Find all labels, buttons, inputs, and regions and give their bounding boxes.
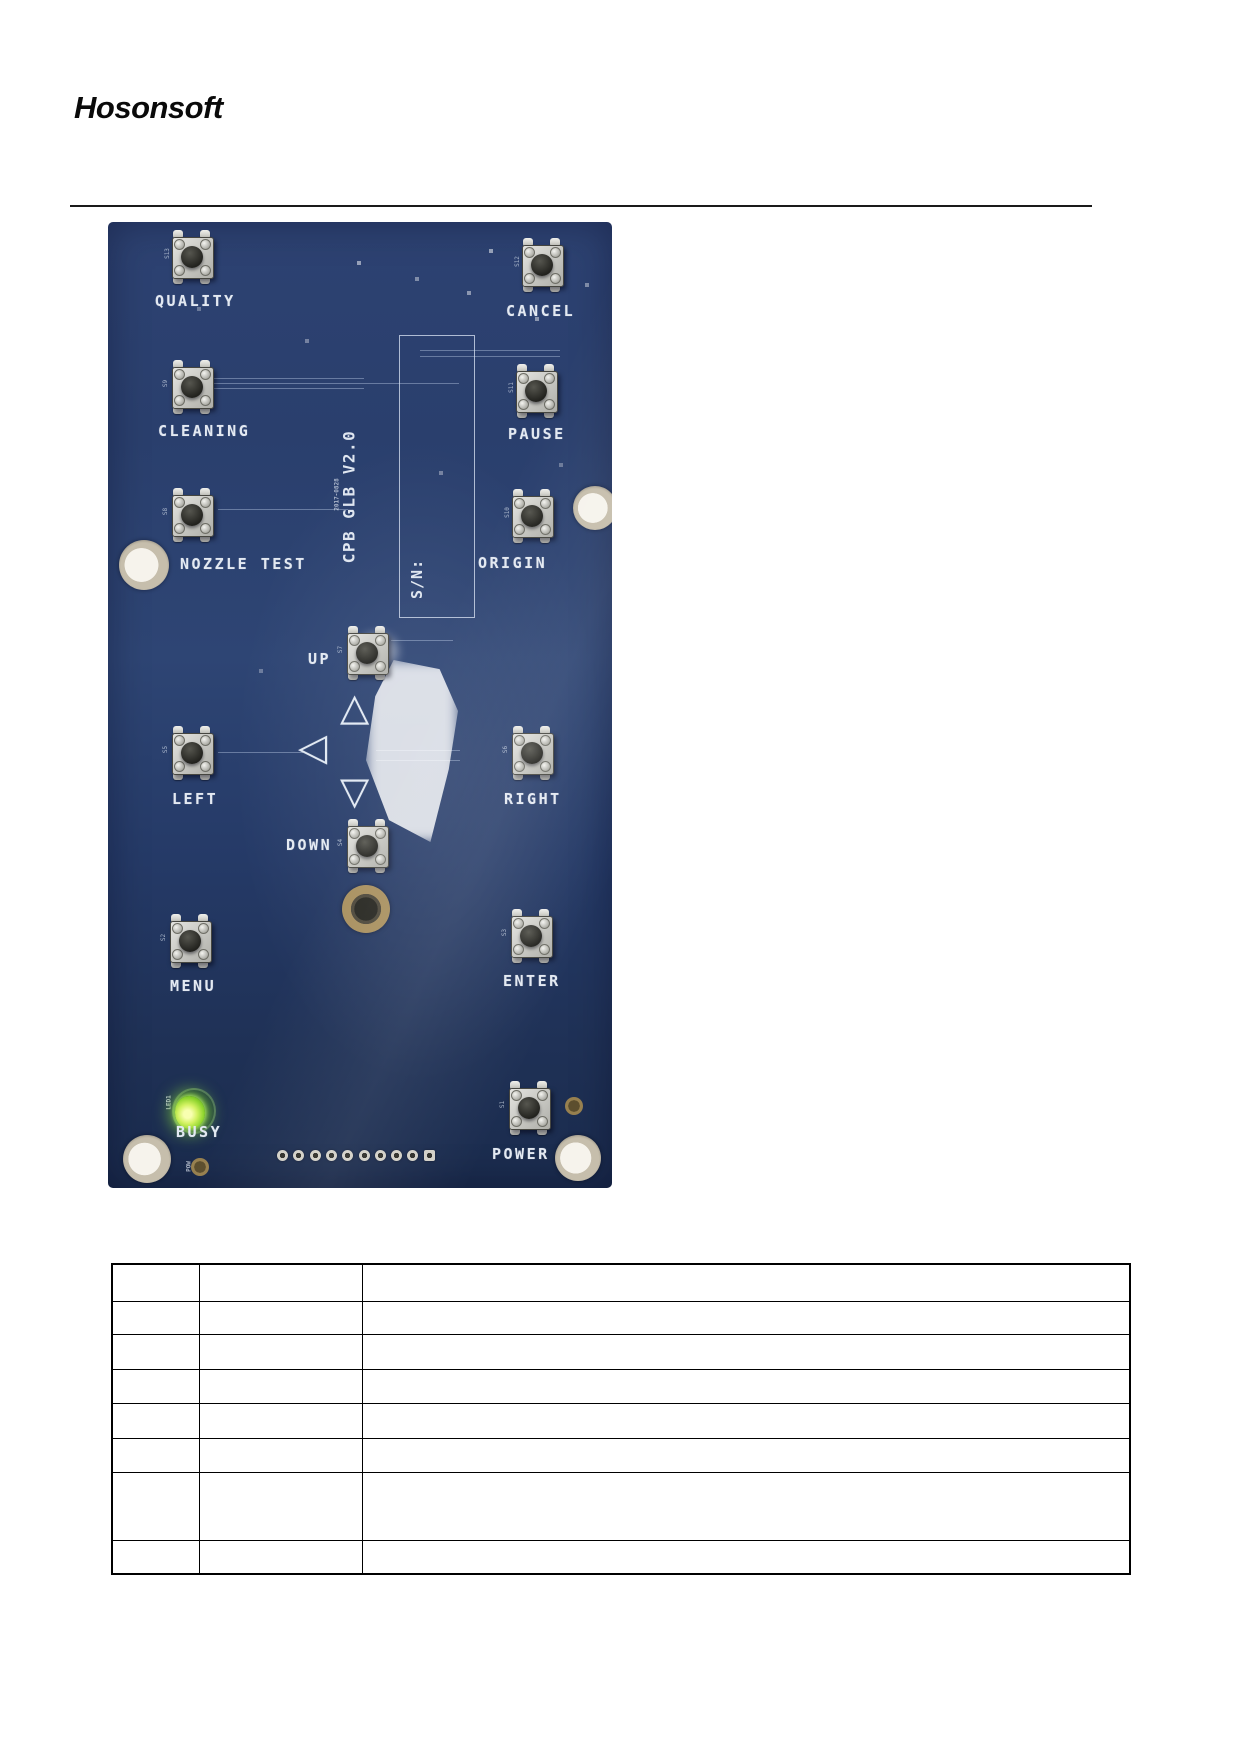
mounting-hole-bottom-right <box>555 1135 601 1181</box>
table-cell <box>112 1264 199 1302</box>
mounting-hole-left <box>119 540 169 590</box>
enter-label: ENTER <box>503 972 561 990</box>
busy-label: BUSY <box>176 1123 222 1141</box>
table-cell <box>362 1264 1130 1302</box>
down-label: DOWN <box>286 836 332 854</box>
pcb-trace <box>214 378 364 379</box>
origin-button: S10 <box>510 489 554 543</box>
table-row <box>112 1264 1130 1302</box>
cleaning-label: CLEANING <box>158 422 250 440</box>
table-cell <box>362 1302 1130 1335</box>
table-row <box>112 1404 1130 1439</box>
pcb-trace <box>218 752 303 753</box>
table-cell <box>112 1439 199 1473</box>
up-button-cap <box>356 642 378 664</box>
table-cell <box>362 1541 1130 1575</box>
table-cell <box>362 1370 1130 1404</box>
table-row <box>112 1302 1130 1335</box>
right-label: RIGHT <box>504 790 562 808</box>
menu-button: S2 <box>168 914 212 968</box>
pcb-trace <box>218 509 348 510</box>
header-pad <box>277 1150 288 1161</box>
serial-label-text: S/N: <box>408 559 426 599</box>
table-cell <box>362 1404 1130 1439</box>
pcb-photo: CPB GLB V2.0 S/N: 2017-0828 LED1 POW BUS… <box>108 222 612 1188</box>
arrow-up-icon: △ <box>340 688 369 726</box>
cancel-button-cap <box>531 254 553 276</box>
table-row <box>112 1439 1130 1473</box>
table-cell <box>112 1335 199 1370</box>
right-button: S6 <box>510 726 554 780</box>
header-pad <box>407 1150 418 1161</box>
table-cell <box>199 1541 362 1575</box>
small-via-busy <box>191 1158 209 1176</box>
cancel-label: CANCEL <box>506 302 575 320</box>
header-pad <box>359 1150 370 1161</box>
photo-glare <box>366 660 458 842</box>
dust-specks <box>108 222 110 224</box>
board-version-text: CPB GLB V2.0 <box>340 422 359 572</box>
table-row <box>112 1370 1130 1404</box>
header-pad <box>375 1150 386 1161</box>
table-cell <box>199 1302 362 1335</box>
up-label: UP <box>308 650 331 668</box>
pcb-trace <box>214 388 364 389</box>
pause-label: PAUSE <box>508 425 566 443</box>
table-row <box>112 1335 1130 1370</box>
pause-button: S11 <box>514 364 558 418</box>
table-cell <box>199 1404 362 1439</box>
origin-label: ORIGIN <box>478 554 547 572</box>
power-button: S1 <box>507 1081 551 1135</box>
table-row <box>112 1473 1130 1541</box>
nozzle-test-button-cap <box>181 504 203 526</box>
header-pad <box>342 1150 353 1161</box>
enter-button-cap <box>520 925 542 947</box>
header-pad <box>310 1150 321 1161</box>
table-cell <box>199 1264 362 1302</box>
mounting-hole-bottom-left <box>123 1135 171 1183</box>
mounting-hole-right <box>573 486 612 530</box>
left-button: S5 <box>170 726 214 780</box>
left-button-cap <box>181 742 203 764</box>
quality-button: S13 <box>170 230 214 284</box>
menu-button-cap <box>179 930 201 952</box>
power-button-cap <box>518 1097 540 1119</box>
table-cell <box>112 1370 199 1404</box>
header-pad <box>424 1150 435 1161</box>
document-page: Hosonsoft CPB GLB V2.0 S/N: 2017-0828 LE… <box>0 0 1240 1754</box>
power-label: POWER <box>492 1145 550 1163</box>
pause-button-cap <box>525 380 547 402</box>
down-button: S4 <box>345 819 389 873</box>
table-cell <box>362 1439 1130 1473</box>
table-cell <box>362 1335 1130 1370</box>
cancel-button: S12 <box>520 238 564 292</box>
table-row <box>112 1541 1130 1575</box>
up-button: S7 <box>345 626 389 680</box>
origin-button-cap <box>521 505 543 527</box>
small-via-power <box>565 1097 583 1115</box>
right-button-cap <box>521 742 543 764</box>
date-code-text: 2017-0828 <box>334 478 341 512</box>
brand-logo: Hosonsoft <box>74 90 223 126</box>
nozzle-test-label: NOZZLE TEST <box>180 555 307 573</box>
table-cell <box>112 1473 199 1541</box>
table-cell <box>112 1541 199 1575</box>
header-pad <box>391 1150 402 1161</box>
table-cell <box>199 1473 362 1541</box>
table-cell <box>112 1404 199 1439</box>
cleaning-button: S9 <box>170 360 214 414</box>
enter-button: S3 <box>509 909 553 963</box>
cleaning-button-cap <box>181 376 203 398</box>
table-cell <box>199 1439 362 1473</box>
table-cell <box>199 1335 362 1370</box>
table-cell <box>362 1473 1130 1541</box>
header-pad <box>293 1150 304 1161</box>
menu-label: MENU <box>170 977 216 995</box>
description-table-body <box>112 1264 1130 1574</box>
header-divider <box>70 205 1092 207</box>
arrow-left-icon: ◁ <box>298 728 327 766</box>
table-cell <box>112 1302 199 1335</box>
pcb-trace <box>391 640 453 641</box>
table-cell <box>199 1370 362 1404</box>
nozzle-test-button: S8 <box>170 488 214 542</box>
description-table <box>111 1263 1131 1575</box>
left-label: LEFT <box>172 790 218 808</box>
down-button-cap <box>356 835 378 857</box>
quality-label: QUALITY <box>155 292 236 310</box>
arrow-down-icon: ▽ <box>340 772 369 810</box>
quality-button-cap <box>181 246 203 268</box>
header-pad <box>326 1150 337 1161</box>
center-standoff-ring <box>342 885 390 933</box>
